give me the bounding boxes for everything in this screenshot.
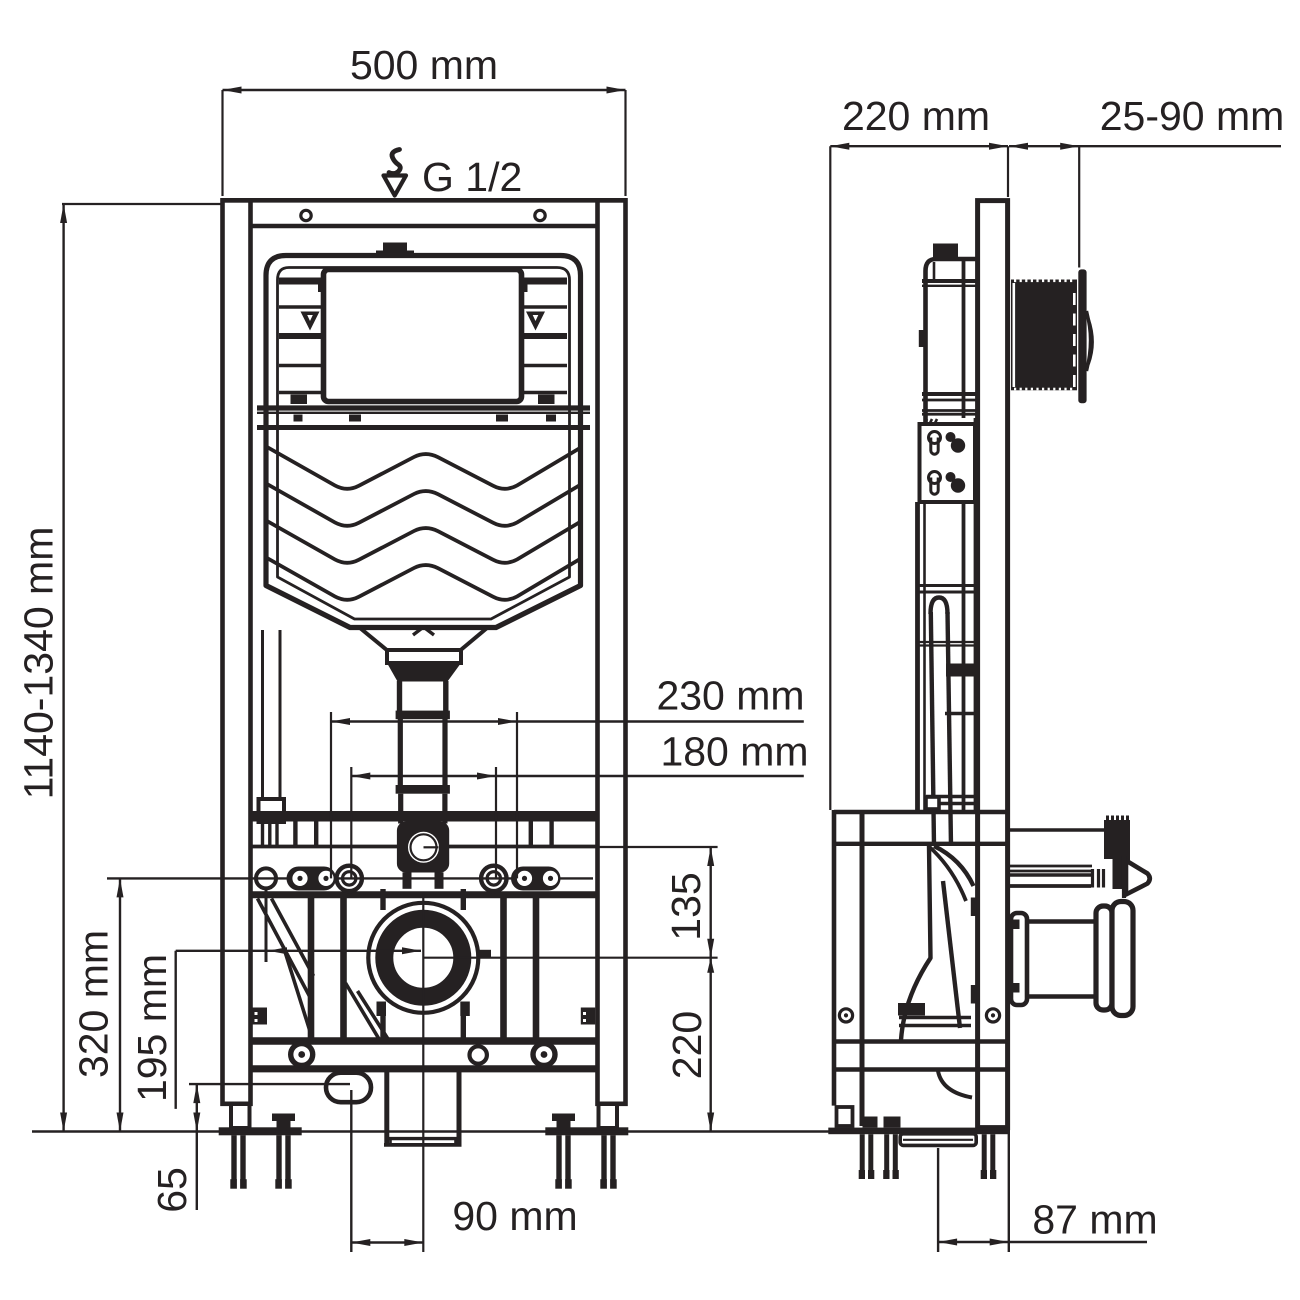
svg-text:G 1/2: G 1/2 [422, 154, 522, 200]
svg-text:135: 135 [663, 872, 709, 940]
svg-text:90 mm: 90 mm [452, 1193, 577, 1239]
svg-text:320 mm: 320 mm [71, 930, 117, 1078]
svg-text:1140-1340 mm: 1140-1340 mm [16, 527, 62, 800]
svg-text:230 mm: 230 mm [656, 673, 804, 719]
svg-text:195 mm: 195 mm [129, 954, 175, 1102]
svg-text:65: 65 [149, 1167, 195, 1213]
svg-text:220 mm: 220 mm [842, 93, 990, 139]
svg-text:180 mm: 180 mm [660, 729, 808, 775]
svg-text:220: 220 [664, 1011, 710, 1079]
svg-text:25-90 mm: 25-90 mm [1100, 93, 1285, 139]
svg-text:87 mm: 87 mm [1032, 1197, 1157, 1243]
svg-text:500 mm: 500 mm [350, 42, 498, 88]
